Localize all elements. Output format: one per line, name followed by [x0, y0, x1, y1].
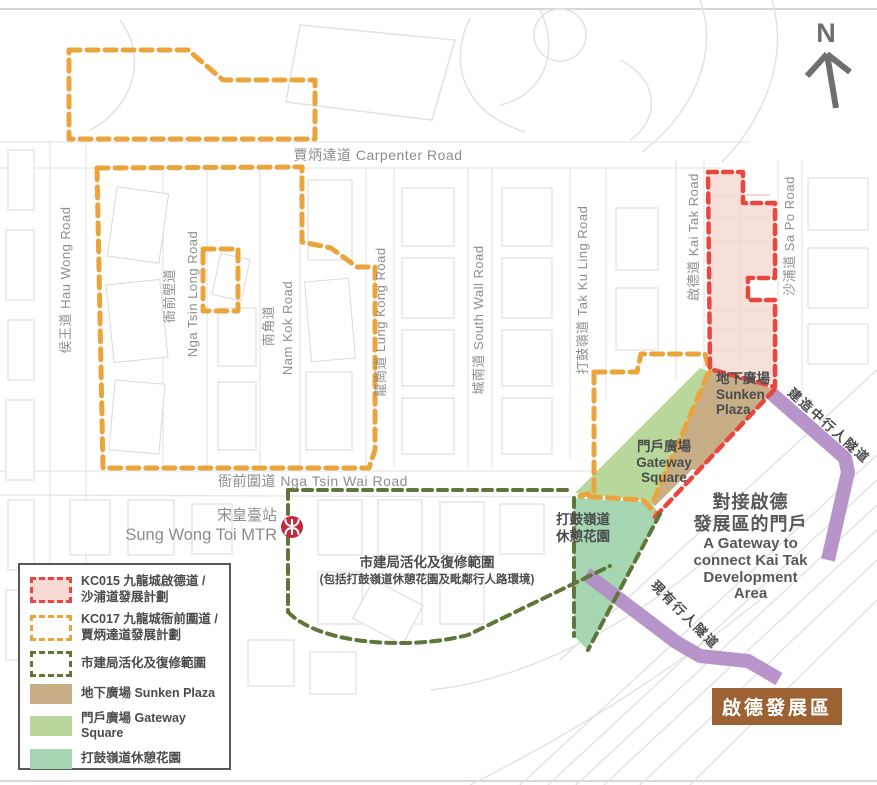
mtr-logo-icon: [281, 516, 303, 538]
road-tak-ku-ling: 打鼓嶺道 Tak Ku Ling Road: [575, 206, 590, 375]
road-nga-tsin-wai: 衙前圍道 Nga Tsin Wai Road: [218, 473, 408, 489]
legend-label: 打鼓嶺道休憩花園: [81, 751, 181, 767]
kai-tak-development-area-badge: 啟德發展區: [712, 688, 842, 725]
gateway-square-label-2: Gateway: [636, 455, 692, 470]
callout-en-line1: A Gateway to: [663, 536, 838, 553]
legend-item-garden: 打鼓嶺道休憩花園: [30, 749, 221, 769]
legend-label: 市建局活化及復修範圍: [81, 656, 206, 672]
ura-swatch-icon: [30, 651, 72, 677]
legend-label: 賈炳達道發展計劃: [81, 628, 218, 644]
road-nam-kok-cn: 南角道: [261, 306, 276, 347]
sunken-plaza-swatch-icon: [30, 684, 72, 704]
gateway-callout: 對接啟德 發展區的門戶 A Gateway to connect Kai Tak…: [663, 492, 838, 603]
legend-item-gateway-square: 門戶廣場 Gateway Square: [30, 711, 221, 742]
gateway-square-label-3: Square: [641, 470, 687, 485]
legend: KC015 九龍城啟德道 /沙浦道發展計劃 KC017 九龍城衙前圍道 /賈炳達…: [18, 563, 231, 770]
road-south-wall: 城南道 South Wall Road: [471, 245, 486, 394]
legend-item-ura: 市建局活化及復修範圍: [30, 651, 221, 677]
kc017-swatch-icon: [30, 615, 72, 641]
callout-en-line2: connect Kai Tak: [663, 553, 838, 570]
road-lung-kong: 龍崗道 Lung Kong Road: [373, 247, 388, 396]
gateway-square-swatch-icon: [30, 716, 72, 736]
road-sa-po: 沙浦道 Sa Po Road: [782, 176, 797, 296]
road-kai-tak: 啟德道 Kai Tak Road: [686, 173, 701, 301]
ura-note: 市建局活化及復修範圍 (包括打鼓嶺道休憩花園及毗鄰行人路環境): [320, 554, 535, 586]
kc015-polygon: [708, 172, 775, 387]
legend-item-sunken-plaza: 地下廣場 Sunken Plaza: [30, 684, 221, 704]
north-arrow-icon: [807, 54, 850, 108]
road-hau-wong: 侯王道 Hau Wong Road: [58, 207, 73, 354]
garden-swatch-icon: [30, 749, 72, 769]
legend-item-kc015: KC015 九龍城啟德道 /沙浦道發展計劃: [30, 574, 221, 605]
garden-label-1: 打鼓嶺道: [556, 511, 610, 527]
map-page: 賈炳達道 Carpenter Road 衙前圍道 Nga Tsin Wai Ro…: [0, 0, 877, 785]
garden-label-2: 休憩花園: [555, 528, 610, 544]
sunken-plaza-label-2: Sunken: [716, 387, 765, 402]
callout-cn-line1: 對接啟德: [663, 492, 838, 514]
legend-label: 沙浦道發展計劃: [81, 590, 205, 606]
sunken-plaza-label-1: 地下廣場: [716, 370, 770, 386]
legend-label: 門戶廣場 Gateway Square: [81, 711, 221, 742]
ura-note-line2: (包括打鼓嶺道休憩花園及毗鄰行人路環境): [320, 572, 535, 586]
legend-label: 地下廣場 Sunken Plaza: [81, 686, 215, 702]
legend-label: KC017 九龍城衙前圍道 /: [81, 612, 218, 628]
gateway-square-label-1: 門戶廣場: [637, 438, 691, 454]
road-carpenter: 賈炳達道 Carpenter Road: [293, 147, 462, 163]
north-arrow: N: [807, 18, 850, 108]
legend-item-kc017: KC017 九龍城衙前圍道 /賈炳達道發展計劃: [30, 612, 221, 643]
ura-note-line1: 市建局活化及復修範圍: [360, 554, 495, 570]
road-nga-tsin-long-cn: 衙前塱道: [162, 269, 177, 323]
kc017-park-polygon: [69, 50, 315, 139]
road-nga-tsin-long-en: Nga Tsin Long Road: [185, 231, 200, 358]
callout-en-line3: Development: [663, 570, 838, 587]
north-label: N: [816, 18, 836, 48]
callout-en-line4: Area: [663, 586, 838, 603]
kc015-swatch-icon: [30, 577, 72, 603]
callout-cn-line2: 發展區的門戶: [663, 514, 838, 536]
sunken-plaza-label-3: Plaza: [716, 402, 751, 417]
station-name-en: Sung Wong Toi MTR: [125, 526, 277, 544]
legend-label: KC015 九龍城啟德道 /: [81, 574, 205, 590]
road-nam-kok-en: Nam Kok Road: [280, 281, 295, 375]
station-name-cn: 宋皇臺站: [217, 507, 277, 524]
